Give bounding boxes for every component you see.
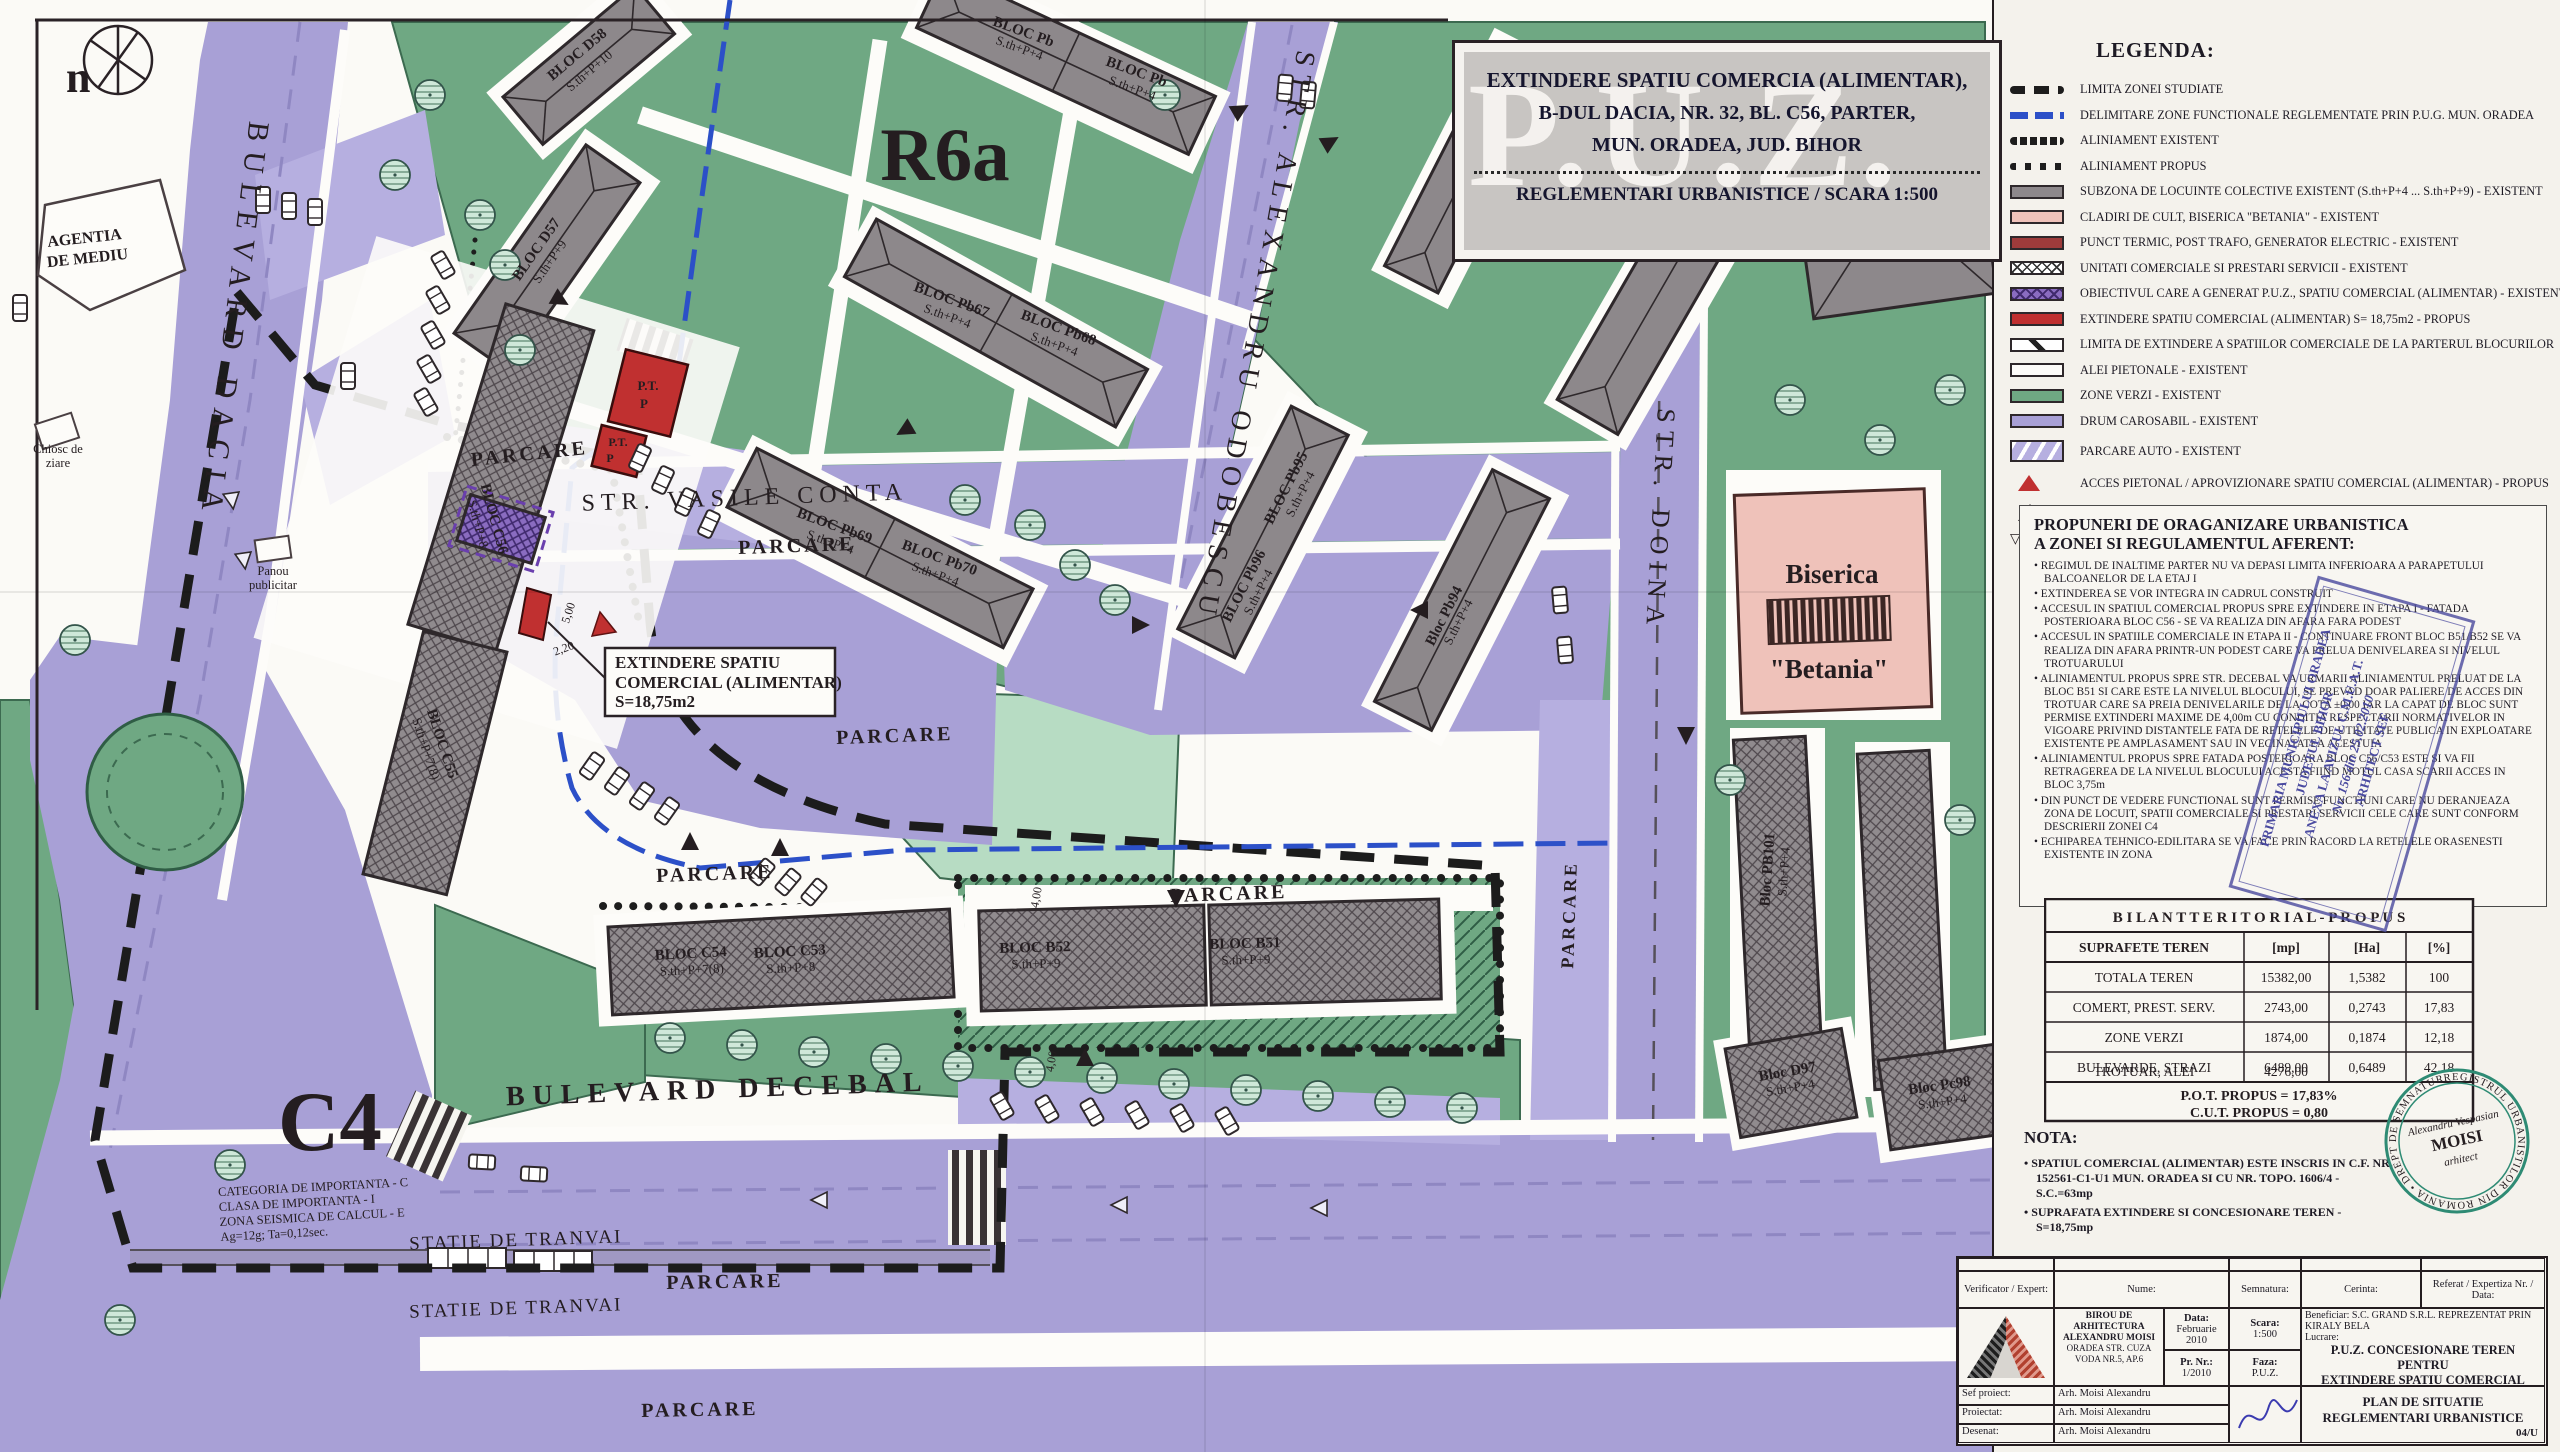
proiectat-label: Proiectat: — [1958, 1405, 2054, 1424]
prnr-cell: Pr. Nr.:1/2010 — [2164, 1350, 2229, 1386]
sef-label: Sef proiect: — [1958, 1386, 2054, 1405]
verificator-cell: Verificator / Expert: — [1958, 1271, 2054, 1308]
alignment-existing-icon — [2010, 137, 2064, 145]
rur-stamp: REGISTRUL URBANISTILOR DIN ROMANIA • DRE… — [2368, 1052, 2546, 1230]
parcare-label: PARCARE — [836, 723, 954, 749]
extension-limit-icon — [2010, 338, 2064, 352]
title-block: P.U.Z. EXTINDERE SPATIU COMERCIA (ALIMEN… — [1452, 40, 2002, 262]
cartouche: Verificator / Expert: Nume: Semnatura: C… — [1956, 1256, 2548, 1446]
legend-item: ZONE VERZI - EXISTENT — [2010, 383, 2550, 409]
semnatura-cell: Semnatura: — [2229, 1271, 2301, 1308]
objective-swatch-icon — [2010, 287, 2064, 301]
svg-text:publicitar: publicitar — [249, 578, 298, 592]
legend-item: PUNCT TERMIC, POST TRAFO, GENERATOR ELEC… — [2010, 230, 2550, 256]
callout-text: EXTINDERE SPATIU — [615, 653, 780, 672]
svg-text:17,83: 17,83 — [2424, 1000, 2455, 1015]
parcare-label: PARCARE — [1557, 861, 1581, 969]
title-line3: MUN. ORADEA, JUD. BIHOR — [1464, 134, 1990, 157]
svg-text:[mp]: [mp] — [2272, 940, 2300, 955]
zone-label-c4: C4 — [278, 1075, 382, 1169]
nota-title: NOTA: — [2024, 1128, 2394, 1148]
title-divider — [1474, 171, 1980, 174]
signature-scribble — [2233, 1388, 2301, 1443]
green-swatch-icon — [2010, 389, 2064, 403]
legend-item: EXTINDERE SPATIU COMERCIAL (ALIMENTAR) S… — [2010, 307, 2550, 333]
svg-text:SUPRAFETE TEREN: SUPRAFETE TEREN — [2079, 940, 2209, 955]
panou-label: Panou — [257, 564, 289, 578]
legend-title: LEGENDA: — [2096, 38, 2550, 63]
svg-text:12,18: 12,18 — [2424, 1030, 2455, 1045]
road-swatch-icon — [2010, 414, 2064, 428]
north-label: n — [66, 53, 90, 102]
roundabout-island — [87, 714, 243, 870]
svg-text:P: P — [606, 451, 613, 465]
parking-swatch-icon — [2010, 440, 2064, 462]
svg-text:[%]: [%] — [2428, 940, 2451, 955]
svg-text:TROTUAR, ALEI: TROTUAR, ALEI — [2094, 1064, 2195, 1079]
legend-item: ACCES PIETONAL / APROVIZIONARE SPATIU CO… — [2010, 468, 2550, 498]
legend-item: OBIECTIVUL CARE A GENERAT P.U.Z., SPATIU… — [2010, 281, 2550, 307]
desenat-label: Desenat: — [1958, 1424, 2054, 1443]
svg-text:S.th+P+9: S.th+P+9 — [1221, 951, 1270, 967]
alley-swatch-icon — [2010, 363, 2064, 377]
svg-text:C.U.T. PROPUS = 0,80: C.U.T. PROPUS = 0,80 — [2190, 1106, 2328, 1121]
firm-cell: BIROU DE ARHITECTURA ALEXANDRU MOISI ORA… — [2054, 1308, 2164, 1386]
legend-item: LIMITA ZONEI STUDIATE — [2010, 77, 2550, 103]
pt-label: P.T. — [638, 378, 659, 393]
svg-text:ziare: ziare — [46, 456, 71, 470]
commercial-swatch-icon — [2010, 261, 2064, 275]
proposal-item: REGIMUL DE INALTIME PARTER NU VA DEPASI … — [2034, 560, 2532, 586]
nota-item: SUPRAFATA EXTINDERE SI CONCESIONARE TERE… — [2024, 1205, 2394, 1235]
access-proposed-icon — [2018, 475, 2040, 491]
church-label: Biserica — [1786, 559, 1879, 589]
proposal-item: EXTINDEREA SE VOR INTEGRA IN CADRUL CONS… — [2034, 588, 2532, 601]
svg-text:0,1874: 0,1874 — [2348, 1030, 2385, 1045]
svg-text:[Ha]: [Ha] — [2354, 940, 2380, 955]
legend-item: SUBZONA DE LOCUINTE COLECTIVE EXISTENT (… — [2010, 179, 2550, 205]
extension-swatch-icon — [2010, 312, 2064, 326]
legend-item: DRUM CAROSABIL - EXISTENT — [2010, 409, 2550, 435]
legend-item: DELIMITARE ZONE FUNCTIONALE REGLEMENTATE… — [2010, 103, 2550, 129]
block-label: BLOC B52 — [999, 939, 1071, 957]
svg-text:0,2743: 0,2743 — [2348, 1000, 2385, 1015]
legend-item: ALINIAMENT PROPUS — [2010, 154, 2550, 180]
sef-value: Arh. Moisi Alexandru — [2054, 1386, 2229, 1405]
plansa-cell: PLAN DE SITUATIE REGLEMENTARI URBANISTIC… — [2301, 1386, 2545, 1443]
svg-text:S.th+P+8: S.th+P+8 — [766, 959, 816, 977]
legend-item: CLADIRI DE CULT, BISERICA "BETANIA" - EX… — [2010, 205, 2550, 231]
nota-section: NOTA: SPATIUL COMERCIAL (ALIMENTAR) ESTE… — [2024, 1128, 2394, 1239]
parcare-label: PARCARE — [656, 861, 774, 887]
signature-cell — [2229, 1386, 2301, 1443]
title-reg-line: REGLEMENTARI URBANISTICE / SCARA 1:500 — [1464, 184, 1990, 206]
block-label: BLOC B51 — [1209, 935, 1281, 953]
legend: LEGENDA: LIMITA ZONEI STUDIATE DELIMITAR… — [2010, 38, 2550, 552]
svg-text:arhitect: arhitect — [2443, 1150, 2480, 1169]
study-limit-icon — [2010, 86, 2064, 94]
nume-cell: Nume: — [2054, 1271, 2229, 1308]
svg-text:2743,00: 2743,00 — [2264, 1000, 2308, 1015]
legend-item: PARCARE AUTO - EXISTENT — [2010, 434, 2550, 468]
svg-text:1874,00: 1874,00 — [2264, 1030, 2308, 1045]
title-block-panel: P.U.Z. EXTINDERE SPATIU COMERCIA (ALIMEN… — [1464, 52, 1990, 250]
svg-text:0,6489: 0,6489 — [2348, 1060, 2385, 1075]
referat-cell: Referat / Expertiza Nr. / Data: — [2421, 1271, 2545, 1308]
proposals-heading: PROPUNERI DE ORAGANIZARE URBANISTICA — [2034, 515, 2409, 534]
legend-item: ALINIAMENT EXISTENT — [2010, 128, 2550, 154]
sheet-number: 04/U — [2516, 1427, 2538, 1439]
title-line1: EXTINDERE SPATIU COMERCIA (ALIMENTAR), — [1464, 68, 1990, 93]
alignment-proposed-icon — [2010, 163, 2064, 170]
right-panel: LEGENDA: LIMITA ZONEI STUDIATE DELIMITAR… — [1992, 0, 2560, 1452]
housing-swatch-icon — [2010, 185, 2064, 199]
svg-text:P: P — [640, 396, 648, 411]
svg-text:ZONE VERZI: ZONE VERZI — [2105, 1030, 2184, 1045]
svg-text:100: 100 — [2429, 970, 2450, 985]
blue-delimitation-icon — [2010, 112, 2064, 119]
svg-text:S=18,75m2: S=18,75m2 — [615, 692, 695, 711]
lucrare-cell: Beneficiar: S.C. GRAND S.R.L. REPREZENTA… — [2301, 1308, 2545, 1386]
proiectat-value: Arh. Moisi Alexandru — [2054, 1405, 2229, 1424]
svg-text:15382,00: 15382,00 — [2261, 970, 2312, 985]
svg-text:TOTALA TEREN: TOTALA TEREN — [2095, 970, 2194, 985]
svg-text:P.O.T. PROPUS = 17,83%: P.O.T. PROPUS = 17,83% — [2181, 1089, 2338, 1104]
panou-sign — [255, 536, 292, 563]
puz-plan-sheet: R6a C4 BULEVARD DACIA STR. ALEXANDRU ODO… — [0, 0, 2560, 1452]
svg-text:COMERT, PREST. SERV.: COMERT, PREST. SERV. — [2073, 1000, 2216, 1015]
svg-text:S.th+P+9: S.th+P+9 — [1011, 955, 1060, 971]
parcare-label: PARCARE — [666, 1270, 784, 1294]
firm-logo — [1967, 1316, 2045, 1378]
chiosc-label: Chiosc de — [33, 442, 83, 456]
desenat-value: Arh. Moisi Alexandru — [2054, 1424, 2229, 1443]
legend-item: LIMITA DE EXTINDERE A SPATIILOR COMERCIA… — [2010, 332, 2550, 358]
thermal-swatch-icon — [2010, 236, 2064, 250]
faza-cell: Faza:P.U.Z. — [2229, 1350, 2301, 1386]
title-line2: B-DUL DACIA, NR. 32, BL. C56, PARTER, — [1464, 102, 1990, 125]
church-swatch-icon — [2010, 210, 2064, 224]
cerinta-cell: Cerinta: — [2301, 1271, 2421, 1308]
svg-text:COMERCIAL (ALIMENTAR): COMERCIAL (ALIMENTAR) — [615, 673, 842, 692]
parcare-label: PARCARE — [641, 1398, 759, 1422]
pt-label: P.T. — [608, 435, 627, 449]
parcare-label: PARCARE — [1170, 881, 1288, 907]
legend-item: UNITATI COMERCIALE SI PRESTARI SERVICII … — [2010, 256, 2550, 282]
church-label: "Betania" — [1770, 654, 1888, 684]
scara-cell: Scara:1:500 — [2229, 1308, 2301, 1350]
legend-item: ALEI PIETONALE - EXISTENT — [2010, 358, 2550, 384]
svg-text:4276,00: 4276,00 — [2264, 1064, 2308, 1079]
data-cell: Data:Februarie 2010 — [2164, 1308, 2229, 1350]
zone-label-r6a: R6a — [880, 114, 1009, 197]
nota-item: SPATIUL COMERCIAL (ALIMENTAR) ESTE INSCR… — [2024, 1156, 2394, 1201]
firm-logo-cell — [1958, 1308, 2054, 1386]
svg-text:1,5382: 1,5382 — [2348, 970, 2385, 985]
